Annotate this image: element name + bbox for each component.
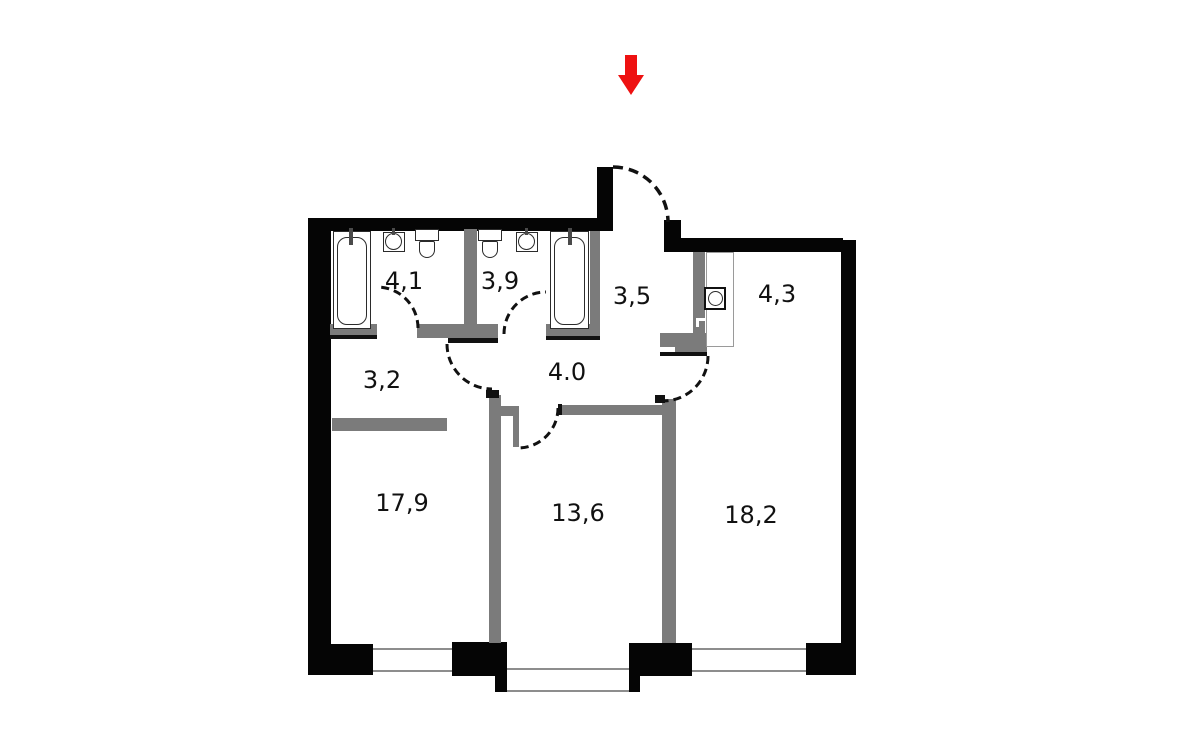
room-label-bedroom-right: 18,2 — [724, 501, 777, 529]
room-label-entry-hall: 3,5 — [613, 282, 651, 310]
room-label-storage: 4,3 — [758, 280, 796, 308]
room-label-living-room: 17,9 — [375, 489, 428, 517]
door-arcs-layer — [0, 0, 1200, 750]
floor-plan: 4,1 3,9 3,5 4,3 3,2 4.0 17,9 13,6 18,2 — [0, 0, 1200, 750]
bedroom-right-door-arc — [663, 356, 708, 401]
room-label-corridor: 3,2 — [363, 366, 401, 394]
entry-door-arc — [613, 167, 668, 222]
bathroom-right-door-arc — [504, 292, 546, 334]
room-label-bathroom-left: 4,1 — [385, 267, 423, 295]
room-label-inner-hall: 4.0 — [548, 358, 586, 386]
bedroom-middle-door-arc — [518, 408, 558, 448]
room-label-bedroom-middle: 13,6 — [551, 499, 604, 527]
entrance-arrow-icon — [618, 55, 644, 95]
room-label-bathroom-right: 3,9 — [481, 267, 519, 295]
living-room-door-arc — [447, 344, 492, 389]
